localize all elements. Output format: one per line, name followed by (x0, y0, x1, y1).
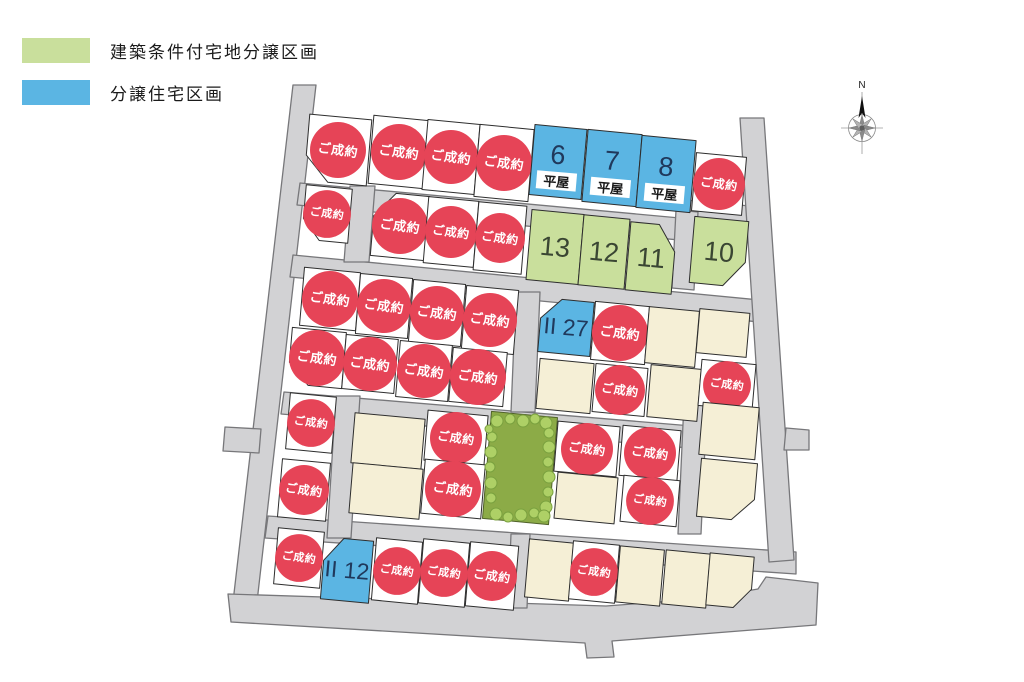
single-story-badge-label: 平屋 (597, 180, 624, 197)
park-bush-icon (544, 428, 554, 438)
lot-vacant (554, 472, 618, 524)
legend-item-conditional-land: 建築条件付宅地分譲区画 (22, 38, 319, 63)
lot-number-label: 13 (539, 231, 572, 264)
lot-vacant (699, 402, 759, 459)
park-bush-icon (540, 417, 552, 429)
park-bush-icon (529, 508, 539, 518)
park-bush-icon (543, 471, 555, 483)
park-bush-icon (491, 415, 503, 427)
legend-swatch-green (22, 38, 90, 63)
road (784, 428, 809, 450)
lot-vacant (662, 550, 711, 608)
lot-number-label: II 27 (543, 312, 590, 342)
park-bush-icon (515, 509, 527, 521)
lot-number-label: 8 (657, 151, 675, 182)
park-bush-icon (485, 425, 493, 433)
lot-vacant (349, 463, 423, 520)
park-bush-icon (487, 432, 497, 442)
single-story-badge-label: 平屋 (543, 173, 570, 190)
lot-number-label: 12 (588, 236, 621, 269)
park-bush-icon (543, 441, 555, 453)
park-bush-icon (486, 493, 496, 503)
park-bush-icon (538, 510, 550, 522)
lot-vacant (536, 358, 594, 413)
park-bush-icon (490, 508, 502, 520)
park-bush-icon (485, 477, 497, 489)
single-story-badge-label: 平屋 (651, 186, 678, 203)
park-bush-icon (505, 414, 515, 424)
legend-item-built-house: 分譲住宅区画 (22, 80, 319, 105)
lot-vacant (696, 309, 750, 358)
lot-map-page: 建築条件付宅地分譲区画 分譲住宅区画 ご成約ご成約ご成約ご成約6平屋7平屋8平屋… (0, 0, 1024, 682)
lot-number-label: 6 (549, 139, 567, 170)
legend-swatch-blue (22, 80, 90, 105)
lot-vacant (616, 546, 665, 606)
park-bush-icon (503, 512, 513, 522)
park-bush-icon (543, 487, 553, 497)
compass-north-label: N (858, 80, 865, 91)
park-bush-icon (530, 414, 540, 424)
lot-vacant (351, 413, 425, 470)
park-bush-icon (485, 462, 495, 472)
legend: 建築条件付宅地分譲区画 分譲住宅区画 (22, 38, 319, 105)
lot-number-label: 10 (703, 236, 736, 269)
lot-vacant (525, 539, 574, 601)
legend-label-conditional-land: 建築条件付宅地分譲区画 (110, 38, 319, 63)
park-bush-icon (517, 415, 529, 427)
lot-number-label: 11 (636, 242, 667, 274)
lot-vacant (697, 458, 758, 519)
park-bush-icon (543, 457, 553, 467)
lot-vacant (645, 307, 700, 368)
road (223, 427, 261, 453)
lot-vacant (647, 365, 701, 422)
lot-number-label: II 12 (324, 555, 371, 585)
legend-label-built-house: 分譲住宅区画 (110, 80, 224, 105)
park-bush-icon (485, 446, 497, 458)
lot-number-label: 7 (603, 145, 621, 176)
compass: N (841, 80, 883, 154)
